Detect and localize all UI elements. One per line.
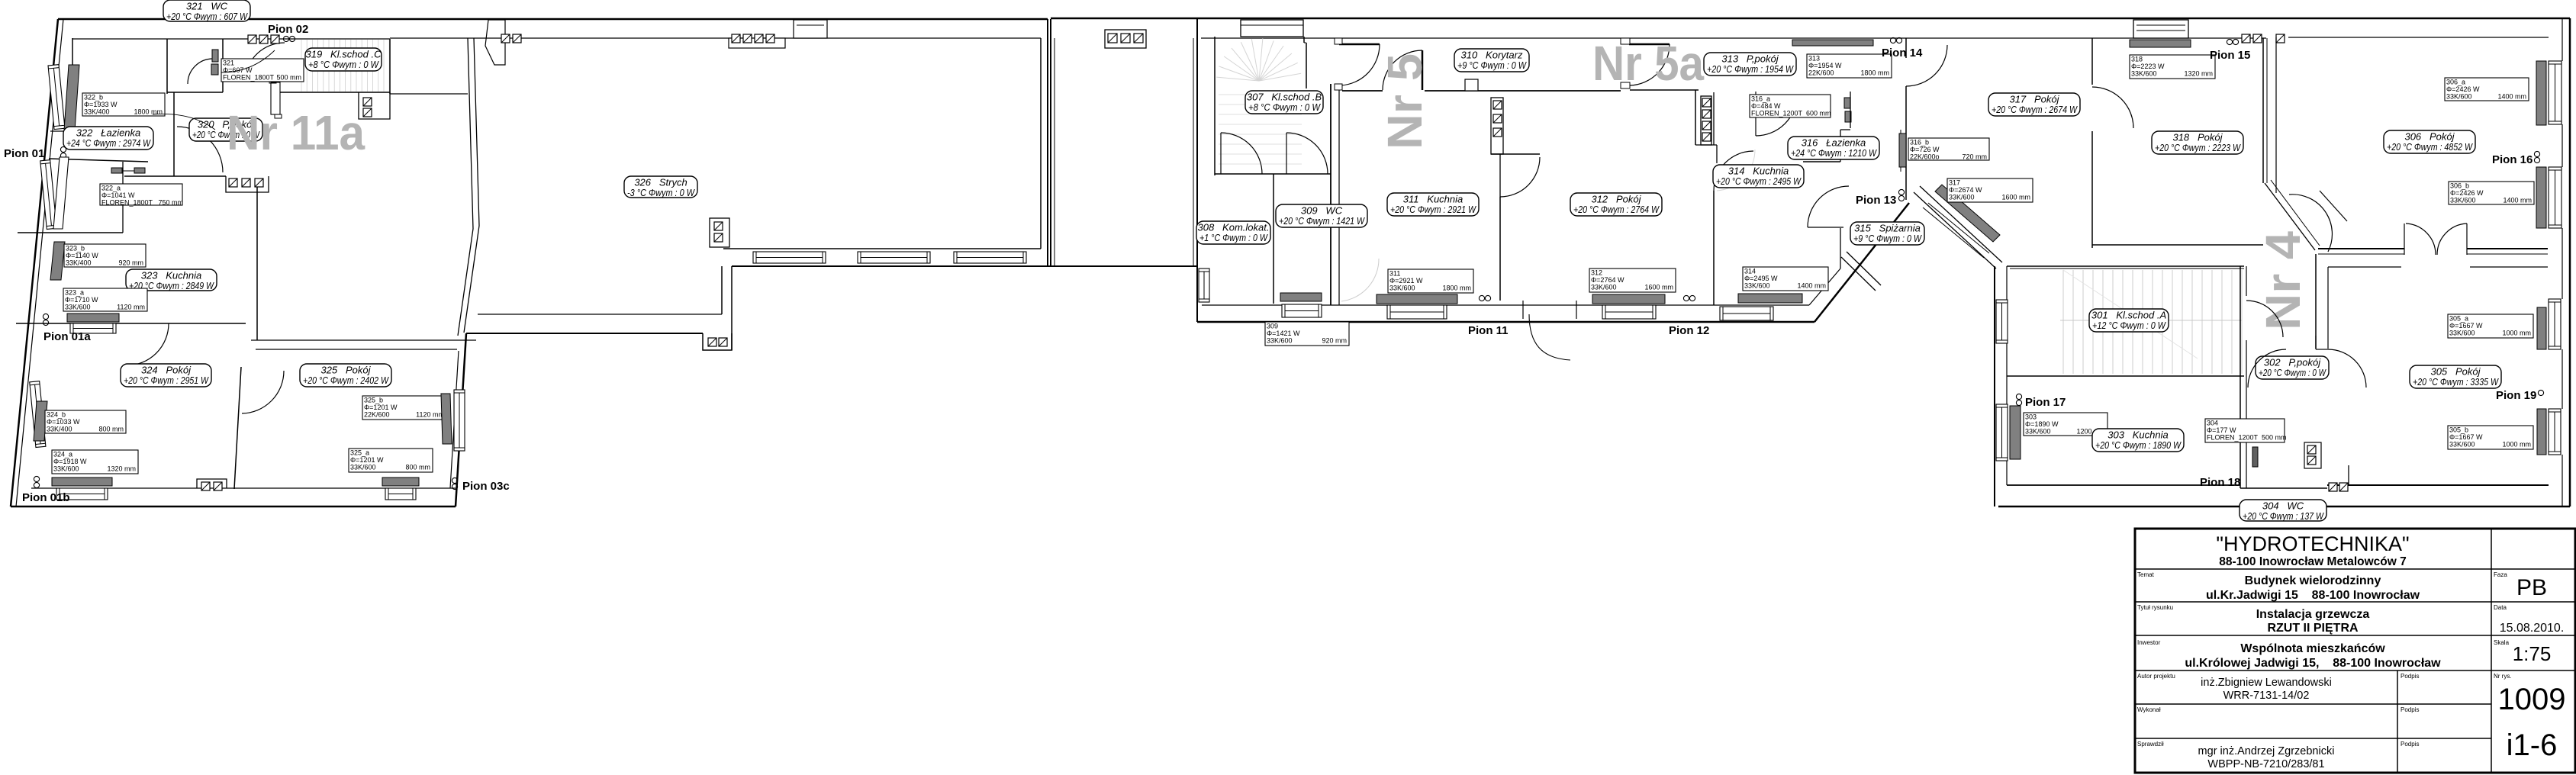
svg-text:1800 mm: 1800 mm <box>1442 285 1471 292</box>
svg-text:33K/600: 33K/600 <box>2449 330 2475 337</box>
svg-text:324_a: 324_a <box>53 451 72 458</box>
svg-text:+20 °C Φwym : 1421 W: +20 °C Φwym : 1421 W <box>1279 215 1365 227</box>
svg-text:316_b: 316_b <box>1910 139 1929 146</box>
svg-text:Φ=1933 W: Φ=1933 W <box>84 101 118 108</box>
svg-text:313: 313 <box>1808 55 1820 63</box>
svg-text:22K/600: 22K/600 <box>1808 69 1834 77</box>
svg-text:Pion 01a: Pion 01a <box>43 330 91 343</box>
svg-text:+8 °C Φwym : 0 W: +8 °C Φwym : 0 W <box>1248 101 1321 113</box>
svg-text:Pion 01b: Pion 01b <box>22 491 70 504</box>
svg-text:Pion 16: Pion 16 <box>2492 153 2533 166</box>
svg-text:Nr 5: Nr 5 <box>1377 53 1432 150</box>
svg-text:1000 mm: 1000 mm <box>2502 330 2531 337</box>
svg-text:+20 °C Φwym : 607 W: +20 °C Φwym : 607 W <box>166 11 248 22</box>
svg-text:305_a: 305_a <box>2449 315 2468 323</box>
svg-text:1400 mm: 1400 mm <box>1797 282 1826 290</box>
svg-text:Φ=2495 W: Φ=2495 W <box>1744 275 1778 282</box>
svg-text:Skala: Skala <box>2494 639 2510 646</box>
svg-text:FLOREN_1800T 750 mm: FLOREN_1800T 750 mm <box>101 199 183 207</box>
svg-text:Φ=177 W: Φ=177 W <box>2207 426 2236 434</box>
svg-text:Pion 11: Pion 11 <box>1468 324 1509 337</box>
svg-text:Φ=1918 W: Φ=1918 W <box>53 458 87 465</box>
svg-text:33K/600: 33K/600 <box>1591 284 1617 291</box>
svg-text:+20 °C Φwym : 2495 W: +20 °C Φwym : 2495 W <box>1716 175 1802 187</box>
svg-text:33K/600: 33K/600 <box>1267 337 1293 345</box>
svg-text:+20 °C Φwym : 137 W: +20 °C Φwym : 137 W <box>2243 510 2324 522</box>
svg-text:Pion 01: Pion 01 <box>4 147 44 160</box>
svg-text:+20 °C Φwym : 1954 W: +20 °C Φwym : 1954 W <box>1707 63 1794 75</box>
svg-text:PB: PB <box>2516 575 2547 600</box>
svg-text:Φ=1140 W: Φ=1140 W <box>66 252 98 259</box>
svg-text:311: 311 <box>1389 270 1400 278</box>
svg-text:Φ=1710 W: Φ=1710 W <box>65 296 98 304</box>
svg-text:920 mm: 920 mm <box>118 259 143 267</box>
svg-text:800 mm: 800 mm <box>98 426 124 433</box>
svg-text:Wykonał: Wykonał <box>2137 706 2161 713</box>
svg-text:FLOREN_1800T: FLOREN_1800T <box>223 74 275 82</box>
svg-text:RZUT II PIĘTRA: RZUT II PIĘTRA <box>2267 622 2359 635</box>
svg-text:316_a: 316_a <box>1751 95 1770 103</box>
svg-text:ul.Królowej Jadwigi 15, 88-: ul.Królowej Jadwigi 15, 88-100 Inowrocła… <box>2185 657 2441 670</box>
svg-text:303: 303 <box>2025 413 2037 421</box>
svg-text:Pion 15: Pion 15 <box>2210 49 2250 62</box>
svg-text:inż.Zbigniew Lewandowski: inż.Zbigniew Lewandowski <box>2201 677 2332 689</box>
svg-text:Autor projektu: Autor projektu <box>2137 673 2175 680</box>
svg-text:306_a: 306_a <box>2446 79 2465 86</box>
svg-text:Budynek wielorodzinny: Budynek wielorodzinny <box>2245 574 2381 587</box>
svg-text:"HYDROTECHNIKA": "HYDROTECHNIKA" <box>2216 532 2409 555</box>
svg-text:1600 mm: 1600 mm <box>1644 284 1673 291</box>
svg-text:88-100 Inowrocław Metalowców 7: 88-100 Inowrocław Metalowców 7 <box>2219 555 2407 568</box>
svg-text:+9 °C Φwym : 0 W: +9 °C Φwym : 0 W <box>1853 233 1922 244</box>
svg-text:Φ=2921 W: Φ=2921 W <box>1389 277 1423 285</box>
svg-text:Φ=1201 W: Φ=1201 W <box>350 456 384 464</box>
svg-text:Pion 12: Pion 12 <box>1669 324 1709 337</box>
svg-text:Φ=1667 W: Φ=1667 W <box>2449 433 2483 441</box>
svg-text:Φ=2426 W: Φ=2426 W <box>2446 85 2480 93</box>
svg-text:+20 °C Φwym : 0 W: +20 °C Φwym : 0 W <box>2259 367 2326 378</box>
svg-text:+9 °C Φwym : 0 W: +9 °C Φwym : 0 W <box>1457 59 1527 71</box>
svg-text:Φ=1890 W: Φ=1890 W <box>2025 420 2059 428</box>
svg-text:33K/600: 33K/600 <box>350 464 376 471</box>
svg-text:Instalacja grzewcza: Instalacja grzewcza <box>2256 608 2370 621</box>
svg-text:Φ=2674 W: Φ=2674 W <box>1949 186 1982 194</box>
svg-text:1120 mm: 1120 mm <box>416 411 444 419</box>
svg-text:Faza: Faza <box>2494 571 2507 578</box>
svg-text:Pion 03c: Pion 03c <box>462 480 510 493</box>
svg-text:33K/600: 33K/600 <box>1389 285 1415 292</box>
svg-text:322_b: 322_b <box>84 94 103 101</box>
svg-text:FLOREN_1200T 600 mm: FLOREN_1200T 600 mm <box>1751 110 1831 117</box>
svg-text:323_a: 323_a <box>65 289 84 297</box>
svg-text:Φ=2426 W: Φ=2426 W <box>2450 189 2484 197</box>
svg-text:321: 321 <box>223 59 234 67</box>
svg-text:1009: 1009 <box>2498 683 2566 716</box>
svg-text:33K/600: 33K/600 <box>53 465 79 473</box>
svg-text:920 mm: 920 mm <box>1322 337 1347 345</box>
svg-text:i1-6: i1-6 <box>2507 728 2558 762</box>
svg-text:1320 mm: 1320 mm <box>107 465 136 473</box>
svg-text:33K/600: 33K/600 <box>1744 282 1770 290</box>
svg-text:+24 °C Φwym : 1210 W: +24 °C Φwym : 1210 W <box>1791 147 1877 159</box>
svg-text:33K/600: 33K/600 <box>2446 93 2472 101</box>
svg-text:Nr 4: Nr 4 <box>2256 231 2310 330</box>
svg-text:22K/600o: 22K/600o <box>1910 153 1940 161</box>
svg-text:Podpis: Podpis <box>2401 706 2419 713</box>
svg-text:ul.Kr.Jadwigi 15 88-100 Ino: ul.Kr.Jadwigi 15 88-100 Inowrocław <box>2206 589 2420 602</box>
svg-text:324_b: 324_b <box>47 411 66 419</box>
svg-text:Pion 19: Pion 19 <box>2496 389 2536 402</box>
svg-text:Wspólnota mieszkańców: Wspólnota mieszkańców <box>2240 642 2385 655</box>
svg-text:Temat: Temat <box>2137 571 2155 578</box>
svg-text:323_b: 323_b <box>66 245 85 252</box>
svg-text:Sprawdził: Sprawdził <box>2137 741 2164 748</box>
svg-text:Podpis: Podpis <box>2401 673 2419 680</box>
svg-text:22K/600: 22K/600 <box>364 411 390 419</box>
svg-text:33K/600: 33K/600 <box>65 304 91 311</box>
svg-text:+20 °C Φwym : 2674 W: +20 °C Φwym : 2674 W <box>1992 104 2078 115</box>
svg-text:Φ=2764 W: Φ=2764 W <box>1591 276 1624 284</box>
svg-text:Φ=1667 W: Φ=1667 W <box>2449 322 2483 330</box>
svg-text:Pion 14: Pion 14 <box>1882 47 1923 59</box>
svg-text:15.08.2010.: 15.08.2010. <box>2500 622 2565 635</box>
svg-text:-3 °C Φwym : 0 W: -3 °C Φwym : 0 W <box>627 187 695 198</box>
svg-text:+20 °C Φwym : 1890 W: +20 °C Φwym : 1890 W <box>2095 439 2182 451</box>
svg-text:33K/600: 33K/600 <box>2131 70 2157 78</box>
svg-text:Pion 18: Pion 18 <box>2200 476 2240 489</box>
svg-text:325_a: 325_a <box>350 449 369 457</box>
svg-text:33K/400: 33K/400 <box>84 108 110 116</box>
svg-text:+1 °C Φwym : 0 W: +1 °C Φwym : 0 W <box>1199 232 1268 243</box>
svg-text:317: 317 <box>1949 179 1960 187</box>
svg-text:1120 mm: 1120 mm <box>117 304 145 311</box>
svg-text:1600 mm: 1600 mm <box>2001 194 2030 201</box>
svg-text:+20 °C Φwym : 2951 W: +20 °C Φwym : 2951 W <box>124 375 209 386</box>
svg-text:720 mm: 720 mm <box>1962 153 1987 161</box>
svg-text:+24 °C Φwym : 2974 W: +24 °C Φwym : 2974 W <box>66 137 151 149</box>
svg-text:Pion 02: Pion 02 <box>268 23 308 36</box>
svg-text:33K/600: 33K/600 <box>2449 441 2475 449</box>
svg-text:1400 mm: 1400 mm <box>2503 197 2532 204</box>
svg-text:Tytuł rysunku: Tytuł rysunku <box>2137 604 2173 611</box>
svg-text:FLOREN_1200T 500 mm: FLOREN_1200T 500 mm <box>2207 434 2287 442</box>
svg-text:Podpis: Podpis <box>2401 741 2419 748</box>
svg-text:Φ=484 W: Φ=484 W <box>1751 102 1781 110</box>
svg-text:1320 mm: 1320 mm <box>2184 70 2213 78</box>
svg-text:+20 °C Φwym : 3335 W: +20 °C Φwym : 3335 W <box>2413 376 2499 387</box>
svg-text:Nr 11a: Nr 11a <box>227 105 365 160</box>
svg-text:1400 mm: 1400 mm <box>2497 93 2526 101</box>
svg-text:33K/600: 33K/600 <box>2025 428 2051 436</box>
svg-text:33K/400: 33K/400 <box>47 426 72 433</box>
svg-text:800 mm: 800 mm <box>405 464 430 471</box>
svg-text:Φ=726 W: Φ=726 W <box>1910 146 1940 153</box>
svg-text:+20 °C Φwym : 4852 W: +20 °C Φwym : 4852 W <box>2387 141 2473 153</box>
svg-text:325_b: 325_b <box>364 397 383 404</box>
svg-text:304: 304 <box>2207 420 2218 427</box>
svg-text:312: 312 <box>1591 269 1602 277</box>
svg-text:WRR-7131-14/02: WRR-7131-14/02 <box>2223 690 2310 702</box>
svg-text:Nr 5a: Nr 5a <box>1592 36 1704 91</box>
svg-text:1:75: 1:75 <box>2513 642 2552 665</box>
svg-text:+12 °C Φwym : 0 W: +12 °C Φwym : 0 W <box>2092 320 2166 331</box>
svg-text:+20 °C Φwym : 2223 W: +20 °C Φwym : 2223 W <box>2155 142 2241 153</box>
svg-text:Φ=1041 W: Φ=1041 W <box>101 191 135 199</box>
svg-text:Φ=1954 W: Φ=1954 W <box>1808 62 1842 69</box>
svg-text:Data: Data <box>2494 604 2507 611</box>
svg-text:1000 mm: 1000 mm <box>2502 441 2531 449</box>
svg-text:Pion 17: Pion 17 <box>2025 396 2066 409</box>
svg-text:314: 314 <box>1744 268 1756 275</box>
svg-text:mgr inż.Andrzej Zgrzebnicki: mgr inż.Andrzej Zgrzebnicki <box>2198 745 2335 757</box>
svg-text:Φ=2223 W: Φ=2223 W <box>2131 63 2165 70</box>
svg-text:WBPP-NB-7210/283/81: WBPP-NB-7210/283/81 <box>2207 758 2324 770</box>
svg-text:Φ=1421 W: Φ=1421 W <box>1267 330 1300 337</box>
svg-text:33K/400: 33K/400 <box>66 259 92 267</box>
svg-text:+20 °C Φwym : 2764 W: +20 °C Φwym : 2764 W <box>1573 204 1660 215</box>
svg-text:+20 °C Φwym : 2402 W: +20 °C Φwym : 2402 W <box>303 375 389 386</box>
svg-text:+20 °C Φwym : 2921 W: +20 °C Φwym : 2921 W <box>1390 204 1476 215</box>
svg-text:306_b: 306_b <box>2450 182 2469 190</box>
svg-text:33K/600: 33K/600 <box>1949 194 1975 201</box>
svg-text:Nr rys.: Nr rys. <box>2494 673 2512 680</box>
svg-text:500 mm: 500 mm <box>276 74 301 82</box>
svg-text:318: 318 <box>2131 56 2143 63</box>
svg-text:322_a: 322_a <box>101 185 121 192</box>
svg-text:Φ=1033 W: Φ=1033 W <box>47 418 80 426</box>
svg-text:Inwestor: Inwestor <box>2137 639 2161 646</box>
svg-text:33K/600: 33K/600 <box>2450 197 2476 204</box>
svg-text:+8 °C Φwym : 0 W: +8 °C Φwym : 0 W <box>308 59 379 70</box>
svg-text:1800 mm: 1800 mm <box>1860 69 1889 77</box>
svg-text:309: 309 <box>1267 323 1278 330</box>
svg-text:Φ=1201 W: Φ=1201 W <box>364 404 398 411</box>
svg-text:305_b: 305_b <box>2449 426 2468 434</box>
svg-text:Pion 13: Pion 13 <box>1856 194 1896 207</box>
